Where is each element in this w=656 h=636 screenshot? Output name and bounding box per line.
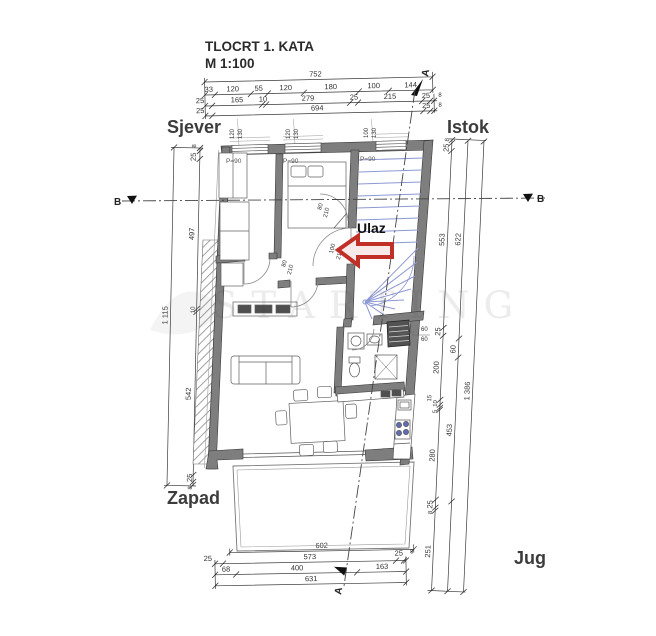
dim-label: 25 <box>422 101 431 110</box>
dim-label: 163 <box>376 562 389 571</box>
chair <box>299 444 314 456</box>
dim-label: 573 <box>304 552 317 561</box>
dresser <box>221 263 243 286</box>
dim-label: 25 <box>350 93 359 102</box>
bedroom1-door-arc <box>244 258 270 284</box>
dim-label: 60 <box>448 345 457 354</box>
window <box>376 141 406 151</box>
dim-label: 8 <box>445 137 451 141</box>
chair <box>323 441 338 453</box>
dim-label: 453 <box>445 424 455 437</box>
window-width-label: 100 <box>364 127 370 138</box>
right-dimensions: 8 25 553 25 200 15 10 5 280 25 8 251 622… <box>418 136 487 595</box>
window-width-label: 120 <box>286 128 292 139</box>
door-label: 100 <box>329 242 338 254</box>
window <box>285 143 321 153</box>
dim-label: 100 <box>367 81 380 90</box>
bedroom-divider-wall <box>274 154 283 258</box>
burner <box>403 429 408 434</box>
toilet-bowl <box>350 363 360 377</box>
parapet-label: P=90 <box>226 158 242 165</box>
terrace <box>233 462 414 551</box>
dim-label: 400 <box>291 563 304 572</box>
dim-label: 694 <box>311 103 324 112</box>
washing-machine-door <box>351 336 361 346</box>
dim-label: 165 <box>231 95 244 104</box>
pillow <box>308 166 323 177</box>
entrance-label: Ulaz <box>357 220 386 236</box>
window-lintel-lines <box>230 133 408 141</box>
dim-label: 542 <box>184 387 193 400</box>
shaft-height-label: 60 <box>421 337 428 343</box>
bathroom-west-wall <box>334 327 344 393</box>
dim-label: 8 <box>428 510 434 514</box>
dim-label: 1 386 <box>462 381 472 400</box>
dim-label: 279 <box>302 94 315 103</box>
parapet-label: P=90 <box>360 156 376 163</box>
chair <box>293 389 308 401</box>
dim-label: 68 <box>222 565 230 574</box>
window-height-label: 130 <box>294 128 300 139</box>
burner <box>396 422 401 427</box>
kitchen <box>337 389 415 459</box>
dim-label: 8 <box>192 144 198 148</box>
pillow <box>291 166 306 177</box>
door-label: 210 <box>287 263 296 275</box>
appliance <box>392 390 401 396</box>
bedroom1-furniture <box>219 153 249 286</box>
chair <box>345 404 357 419</box>
dim-label: 10 <box>433 399 439 407</box>
section-a-top-label: A <box>420 68 432 77</box>
floor-plan-canvas: 752 33 120 55 120 180 100 144 25 165 10 … <box>0 0 656 636</box>
dim-label: 25 <box>395 549 403 558</box>
dim-label: 25 <box>185 474 194 483</box>
top-dimensions: 752 33 120 55 120 180 100 144 25 165 10 … <box>195 67 443 120</box>
dim-label: 251 <box>423 545 433 558</box>
dim-label: 25 <box>189 153 198 162</box>
burner <box>403 421 408 426</box>
dim-label: 180 <box>324 82 337 91</box>
kitchen-sink-basin <box>400 402 409 408</box>
parapet-label: P=90 <box>283 158 299 165</box>
section-b-right-label: B <box>537 194 544 205</box>
dim-label: 25 <box>425 500 434 509</box>
dim-label: 631 <box>305 574 318 583</box>
dim-label: 33 <box>204 85 213 94</box>
section-b-left-label: B <box>114 197 121 208</box>
chair <box>317 386 332 398</box>
dim-label: 25 <box>196 96 205 105</box>
dim-label: 25 <box>196 106 205 115</box>
dim-label: 25 <box>422 91 431 100</box>
dim-label: 622 <box>453 233 463 246</box>
bedroom2-furniture <box>288 162 346 228</box>
shaft-width-label: 60 <box>421 327 428 333</box>
section-a-bottom-label: A <box>333 586 345 595</box>
dim-label: 280 <box>427 449 437 462</box>
burner <box>396 430 401 435</box>
dim-label: 25 <box>204 554 212 563</box>
stair-west-wall-upper <box>348 150 359 228</box>
dim-label: 497 <box>187 227 196 240</box>
dim-label: 8 <box>438 93 442 99</box>
window-height-label: 130 <box>238 128 244 139</box>
entrance-arrow <box>338 236 392 265</box>
window-width-label: 120 <box>230 128 236 139</box>
dim-label: 553 <box>437 233 447 246</box>
dim-label: 25 <box>441 143 450 152</box>
dim-label: 120 <box>226 84 239 93</box>
dim-label: 55 <box>254 84 263 93</box>
chair <box>275 411 287 426</box>
watermark-text: STARTING <box>212 284 527 327</box>
dim-label: 144 <box>404 80 417 89</box>
section-b-left-arrow <box>127 196 137 204</box>
dim-label: 10 <box>259 95 268 104</box>
bottom-dimensions: 602 25 573 25 8 68 400 163 631 <box>203 539 417 589</box>
appliance <box>381 391 390 397</box>
dim-label: 752 <box>309 69 322 78</box>
floor-plan-page: TLOCRT 1. KATAM 1:100 Sjever Istok Zapad… <box>0 0 656 636</box>
dim-label: 215 <box>384 92 397 101</box>
sofa <box>231 356 300 384</box>
dining-table <box>289 401 345 444</box>
dim-label: 8 <box>438 103 442 109</box>
dim-label: 120 <box>279 83 292 92</box>
dim-label: 25 <box>433 327 442 336</box>
toilet-tank <box>349 357 360 363</box>
window-height-label: 130 <box>372 127 378 138</box>
dim-label: 200 <box>431 361 441 374</box>
